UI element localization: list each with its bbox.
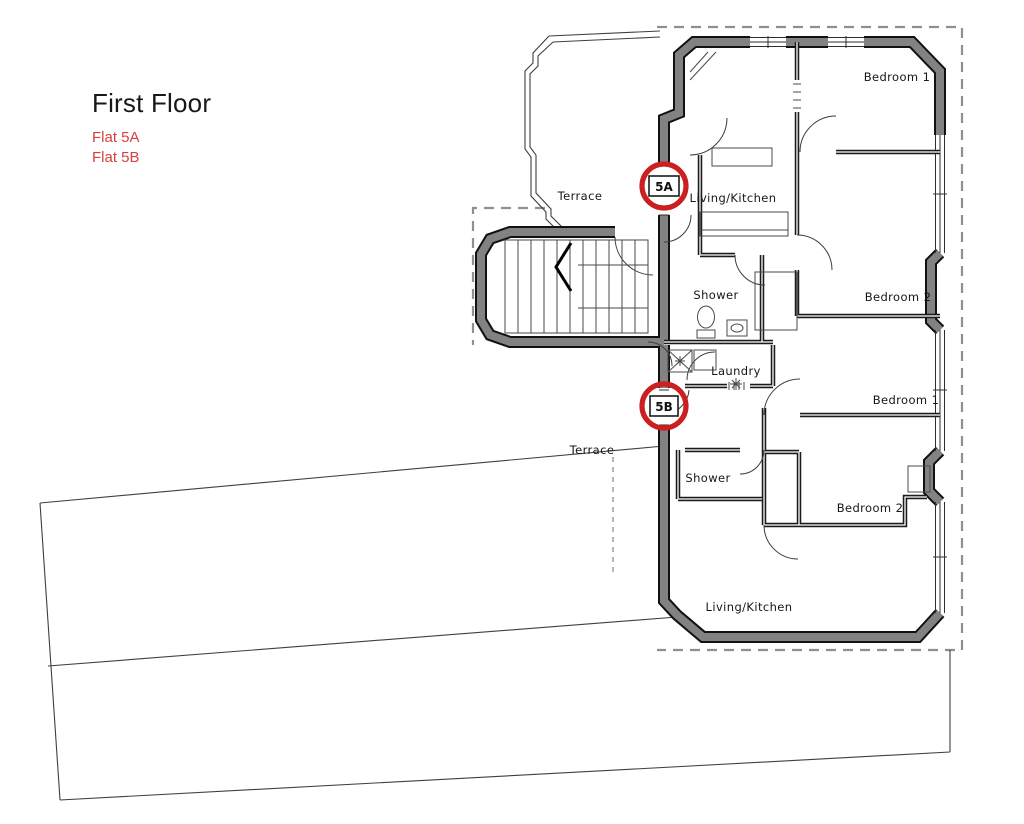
flat-label-5a: Flat 5A — [92, 128, 211, 148]
floor-plan-page: First Floor Flat 5A Flat 5B — [0, 0, 1024, 824]
flat-5b-marker-label: 5B — [655, 400, 673, 414]
flat-5a-marker: 5A — [642, 164, 686, 208]
outer-walls — [481, 42, 940, 637]
laundry-appliance-boxes — [668, 350, 716, 372]
interior-walls — [664, 42, 940, 525]
toilet-5a — [697, 306, 715, 338]
lower-terrace-outline — [40, 446, 950, 800]
corner-unit-5a — [690, 52, 716, 80]
staircase — [505, 240, 648, 333]
room-label-shower-5a: Shower — [693, 288, 738, 302]
laundry-symbol — [730, 378, 742, 390]
room-label-bedroom2-5a: Bedroom 2 — [865, 290, 932, 304]
room-label-living-kitchen-5b: Living/Kitchen — [706, 600, 793, 614]
flat-label-5b: Flat 5B — [92, 148, 211, 168]
room-label-living-kitchen-5a: Living/Kitchen — [690, 191, 777, 205]
room-label-laundry: Laundry — [711, 364, 761, 378]
flat-5b-marker: 5B — [642, 384, 686, 428]
room-label-terrace-upper: Terrace — [557, 189, 603, 203]
room-label-bedroom1-5b: Bedroom 1 — [873, 393, 940, 407]
room-label-bedroom2-5b: Bedroom 2 — [837, 501, 904, 515]
room-label-shower-5b: Shower — [685, 471, 730, 485]
kitchen-counter-5a — [700, 212, 788, 236]
room-label-bedroom1-5a: Bedroom 1 — [864, 70, 931, 84]
flat-5a-marker-label: 5A — [655, 180, 673, 194]
room-label-terrace-lower: Terrace — [569, 443, 615, 457]
living-table-5a — [712, 148, 772, 166]
page-title: First Floor — [92, 88, 211, 119]
stair-direction-arrow — [556, 243, 571, 291]
title-block: First Floor Flat 5A Flat 5B — [92, 88, 211, 168]
basin-5a — [727, 320, 747, 336]
